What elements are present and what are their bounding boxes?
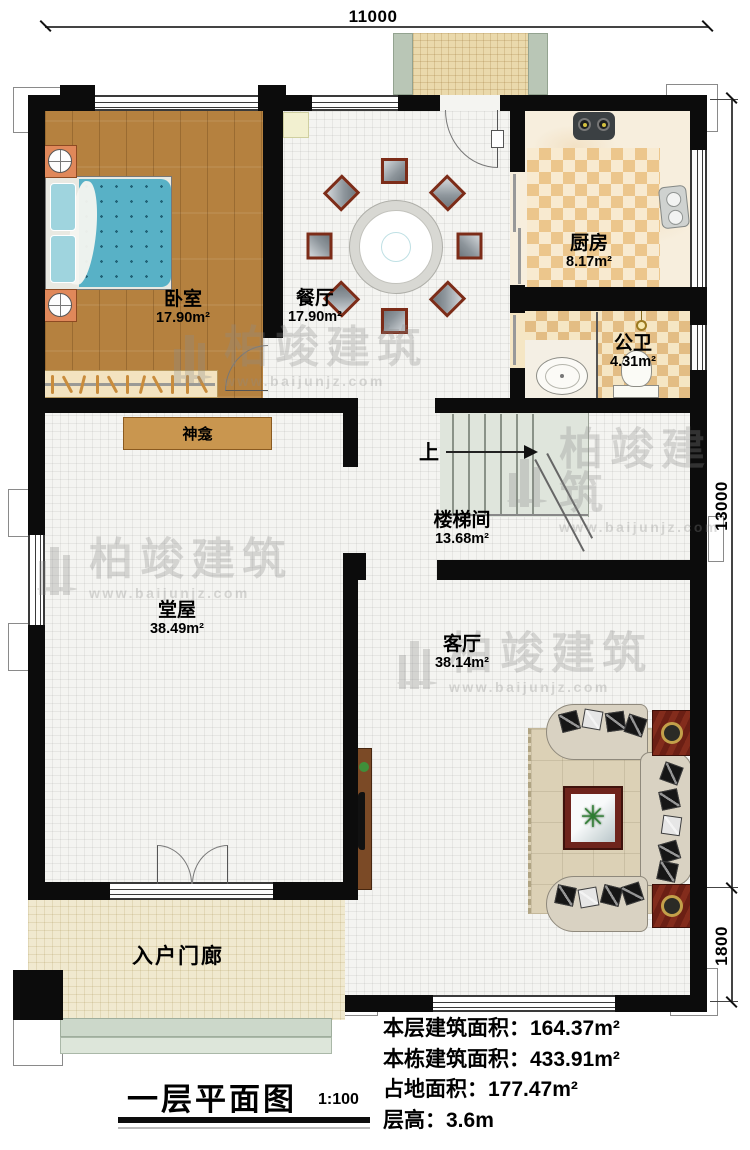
wall	[437, 560, 707, 580]
stat-line: 本栋建筑面积：433.91m²	[383, 1045, 620, 1076]
wall	[343, 398, 358, 467]
window	[95, 95, 258, 111]
entry-step-1	[60, 1018, 332, 1037]
clothes-hanger	[171, 375, 174, 394]
room-label-stairwell: 楼梯间 13.68m²	[433, 510, 490, 548]
stairs	[440, 413, 589, 517]
wall	[690, 95, 707, 150]
sofa-pillow	[661, 815, 682, 836]
shrine-label: 神龛	[182, 423, 212, 444]
bathroom-door	[513, 315, 516, 365]
kitchen-sliding-door	[518, 228, 521, 284]
stat-line: 占地面积：177.47m²	[383, 1075, 620, 1106]
dining-chair	[457, 233, 483, 260]
bed-pillow	[50, 183, 76, 231]
burner-dot	[602, 123, 606, 127]
back-porch-floor	[413, 33, 528, 95]
wall	[345, 995, 433, 1012]
sofa-pillow	[605, 711, 626, 732]
room-label-porch: 入户门廊	[132, 945, 224, 969]
stair-arrow-head	[524, 445, 538, 459]
stair-direction-line	[446, 451, 526, 453]
window	[690, 325, 707, 370]
burner-dot	[583, 123, 587, 127]
wall	[273, 882, 358, 900]
dimension-top-value: 11000	[338, 7, 408, 27]
room-label-hall: 堂屋 38.49m²	[150, 600, 204, 638]
clothes-hanger	[96, 375, 99, 394]
dining-chair	[307, 233, 333, 260]
nightstand-lamp	[48, 149, 72, 173]
wall	[28, 882, 110, 900]
room-label-bathroom: 公卫 4.31m²	[610, 333, 656, 371]
sofa-pillow	[581, 708, 603, 730]
column-marker	[13, 1018, 63, 1066]
sofa-pillow	[554, 884, 577, 907]
column-marker	[8, 623, 30, 671]
stair-tread	[532, 414, 534, 514]
wall	[510, 95, 525, 172]
stat-line: 本层建筑面积：164.37m²	[383, 1014, 620, 1045]
dimension-right-main-value: 13000	[712, 466, 732, 546]
window	[28, 535, 45, 625]
bathroom-divider	[596, 312, 598, 398]
stair-tread	[500, 414, 502, 514]
room-label-living: 客厅 38.14m²	[435, 634, 489, 672]
sofa-pillow	[656, 860, 679, 883]
bath-sink	[536, 357, 588, 395]
wall	[60, 85, 95, 97]
back-porch-side-left	[393, 33, 413, 95]
dining-cabinet	[283, 112, 309, 138]
table-plant: ✳	[577, 800, 609, 836]
dimension-line-right	[731, 98, 733, 1003]
end-table-lamp	[661, 722, 683, 744]
building-stats: 本层建筑面积：164.37m² 本栋建筑面积：433.91m² 占地面积：177…	[383, 1014, 620, 1136]
title-underline-thick	[118, 1117, 370, 1123]
wall	[615, 995, 707, 1012]
shrine-cabinet: 神龛	[123, 417, 272, 450]
wall	[28, 625, 45, 890]
room-label-bedroom: 卧室 17.90m²	[156, 289, 210, 327]
entry-step-2	[60, 1037, 332, 1054]
bed	[45, 176, 172, 290]
room-label-kitchen: 厨房 8.17m²	[566, 233, 612, 271]
drawing-scale: 1:100	[318, 1091, 359, 1109]
sofa-pillow	[658, 788, 681, 811]
wardrobe-rail	[45, 383, 215, 386]
dining-table-center	[381, 232, 411, 262]
wardrobe	[42, 370, 218, 398]
dimension-right-bottom-value: 1800	[712, 911, 732, 981]
kitchen-sliding-door	[513, 174, 516, 232]
window	[690, 150, 707, 287]
floor-plan-page: 神龛	[0, 0, 750, 1150]
sofa-pillow	[577, 886, 599, 908]
dining-chair	[381, 308, 408, 334]
window	[433, 995, 615, 1012]
wall	[398, 95, 440, 111]
title-underline-thin	[118, 1127, 370, 1129]
wall	[28, 95, 45, 535]
wall	[435, 398, 700, 413]
wall	[690, 370, 707, 1012]
clothes-hanger	[126, 375, 129, 394]
wall	[510, 287, 707, 311]
end-table-lamp	[661, 895, 683, 917]
stair-tread	[452, 414, 454, 514]
column-marker	[8, 489, 30, 537]
bed-pillow	[50, 235, 76, 283]
window	[312, 95, 398, 111]
wall	[500, 95, 707, 111]
porch-column	[13, 970, 63, 1020]
stairs-up-label: 上	[419, 436, 439, 465]
back-door-opening	[440, 95, 500, 111]
tv-screen	[358, 792, 365, 850]
stair-tread	[468, 414, 470, 514]
sink-basin	[665, 191, 681, 207]
back-porch-side-right	[528, 33, 548, 95]
back-door-handle	[491, 130, 504, 148]
drawing-title: 一层平面图	[127, 1074, 297, 1119]
wall	[263, 95, 283, 338]
wall	[28, 398, 358, 413]
dining-chair	[381, 158, 408, 184]
wall	[510, 368, 525, 398]
nightstand-lamp	[48, 293, 72, 317]
stove	[573, 112, 615, 140]
clothes-hanger	[186, 375, 189, 394]
clothes-hanger	[51, 375, 54, 394]
bath-sink-drain	[560, 374, 564, 378]
wall	[343, 553, 358, 890]
stat-line: 层高：3.6m	[383, 1106, 620, 1137]
room-label-dining: 餐厅 17.90m²	[288, 288, 342, 326]
stair-tread	[516, 414, 518, 514]
tv-plant	[359, 762, 369, 772]
stair-tread	[484, 414, 486, 514]
kitchen-sink	[658, 185, 690, 230]
entry-sidelight	[110, 882, 273, 900]
pull-lamp	[636, 320, 647, 331]
sink-basin	[667, 209, 683, 225]
coffee-table: ✳	[563, 786, 623, 850]
